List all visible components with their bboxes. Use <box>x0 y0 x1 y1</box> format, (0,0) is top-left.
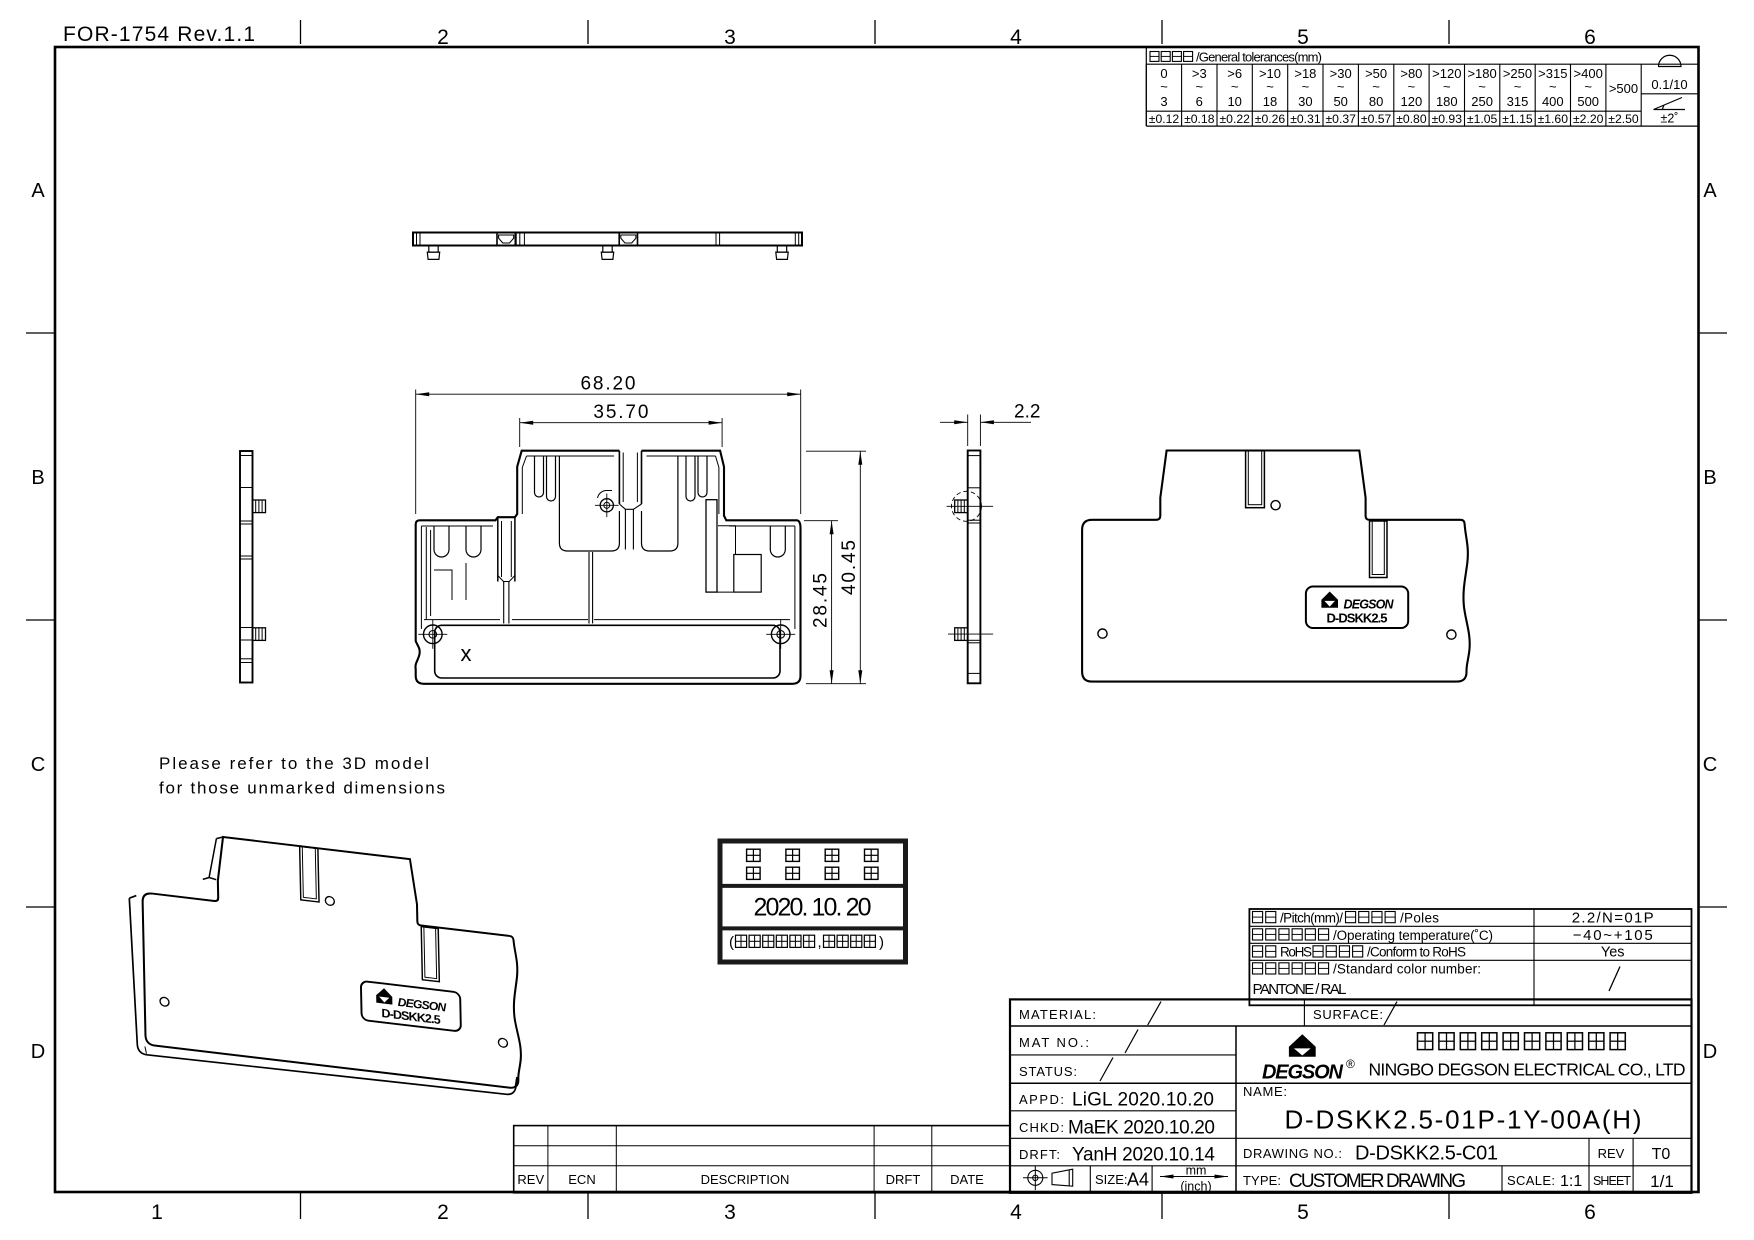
svg-text:±0.57: ±0.57 <box>1361 112 1392 126</box>
svg-text:NINGBO DEGSON ELECTRICAL CO.,: NINGBO DEGSON ELECTRICAL CO., LTD <box>1369 1060 1686 1080</box>
svg-text:~: ~ <box>1478 79 1486 94</box>
svg-text:400: 400 <box>1542 94 1564 109</box>
svg-text:2.2: 2.2 <box>1014 402 1040 423</box>
svg-text:±0.31: ±0.31 <box>1290 112 1321 126</box>
svg-text:T0: T0 <box>1652 1146 1671 1163</box>
svg-text:315: 315 <box>1507 94 1529 109</box>
svg-text:50: 50 <box>1333 94 1347 109</box>
svg-text:Please refer to the 3D model: Please refer to the 3D model <box>159 754 429 773</box>
svg-text:MAT NO.:: MAT NO.: <box>1019 1035 1089 1050</box>
svg-text:REV: REV <box>1598 1146 1625 1161</box>
svg-text:6: 6 <box>1196 94 1203 109</box>
svg-text:TYPE:: TYPE: <box>1243 1173 1281 1188</box>
svg-text:~: ~ <box>1408 79 1416 94</box>
svg-text:DRFT: DRFT <box>886 1172 921 1187</box>
svg-text:10: 10 <box>1227 94 1241 109</box>
svg-text:PANTONE / RAL: PANTONE / RAL <box>1253 981 1347 998</box>
svg-text:DEGSON: DEGSON <box>1344 598 1395 612</box>
svg-text:mm: mm <box>1186 1164 1207 1178</box>
svg-text:180: 180 <box>1436 94 1458 109</box>
svg-text:B: B <box>31 467 44 489</box>
svg-text:A4: A4 <box>1127 1170 1149 1190</box>
svg-text:FOR-1754 Rev.1.1: FOR-1754 Rev.1.1 <box>63 23 255 46</box>
svg-text:80: 80 <box>1369 94 1383 109</box>
svg-text:MATERIAL:: MATERIAL: <box>1019 1007 1096 1022</box>
svg-text:~: ~ <box>1443 79 1451 94</box>
svg-text:68.20: 68.20 <box>581 374 636 395</box>
svg-text:/General tolerances(mm): /General tolerances(mm) <box>1196 50 1322 65</box>
svg-text:LiGL 2020.10.20: LiGL 2020.10.20 <box>1072 1090 1214 1111</box>
svg-text:DRAWING NO.:: DRAWING NO.: <box>1243 1146 1342 1161</box>
svg-text:28.45: 28.45 <box>810 573 831 628</box>
svg-text:4: 4 <box>1010 1201 1022 1224</box>
svg-text:~: ~ <box>1337 79 1345 94</box>
svg-text:6: 6 <box>1584 1201 1596 1224</box>
svg-text:/Operating temperature(˚C): /Operating temperature(˚C) <box>1333 928 1493 943</box>
svg-text:D-DSKK2.5-C01: D-DSKK2.5-C01 <box>1355 1143 1498 1165</box>
svg-text:>500: >500 <box>1609 81 1638 96</box>
svg-text:x: x <box>461 641 472 666</box>
svg-text:250: 250 <box>1471 94 1493 109</box>
svg-text:0.1/10: 0.1/10 <box>1651 77 1687 92</box>
svg-text:2: 2 <box>437 1201 449 1224</box>
svg-text:D-DSKK2.5: D-DSKK2.5 <box>1327 611 1388 626</box>
svg-text:C: C <box>1703 754 1717 776</box>
svg-text:±0.12: ±0.12 <box>1149 112 1180 126</box>
svg-text:for those unmarked dimensions: for those unmarked dimensions <box>159 779 445 798</box>
svg-text:2: 2 <box>437 26 449 49</box>
svg-text:500: 500 <box>1577 94 1599 109</box>
svg-text:Yes: Yes <box>1601 945 1625 961</box>
svg-text:MaEK 2020.10.20: MaEK 2020.10.20 <box>1068 1118 1215 1139</box>
svg-text:±1.15: ±1.15 <box>1502 112 1533 126</box>
svg-text:CHKD:: CHKD: <box>1019 1120 1064 1135</box>
svg-text:35.70: 35.70 <box>593 402 648 423</box>
svg-text:/Conform to RoHS: /Conform to RoHS <box>1367 945 1466 960</box>
svg-text:±0.80: ±0.80 <box>1396 112 1427 126</box>
svg-text:): ) <box>879 934 884 951</box>
svg-text:40.45: 40.45 <box>839 540 860 595</box>
svg-text:,: , <box>818 934 822 951</box>
svg-text:RoHS: RoHS <box>1280 945 1312 960</box>
svg-text:NAME:: NAME: <box>1243 1084 1287 1099</box>
svg-text:30: 30 <box>1298 94 1312 109</box>
svg-text:±0.37: ±0.37 <box>1325 112 1356 126</box>
svg-text:ECN: ECN <box>568 1172 595 1187</box>
svg-text:(: ( <box>729 934 734 951</box>
svg-text:/Poles: /Poles <box>1400 911 1439 926</box>
svg-text:DESCRIPTION: DESCRIPTION <box>701 1172 790 1187</box>
svg-text:~: ~ <box>1302 79 1310 94</box>
svg-text:1: 1 <box>151 1201 163 1224</box>
svg-text:®: ® <box>1346 1057 1355 1071</box>
svg-text:±0.22: ±0.22 <box>1219 112 1250 126</box>
svg-text:5: 5 <box>1297 26 1309 49</box>
svg-text:DATE: DATE <box>950 1172 984 1187</box>
svg-text:±0.18: ±0.18 <box>1184 112 1215 126</box>
svg-text:SIZE:: SIZE: <box>1095 1172 1128 1187</box>
svg-text:5: 5 <box>1297 1201 1309 1224</box>
svg-text:~: ~ <box>1160 79 1168 94</box>
svg-text:SHEET: SHEET <box>1593 1174 1631 1188</box>
svg-text:APPD:: APPD: <box>1019 1092 1064 1107</box>
svg-text:±2.50: ±2.50 <box>1608 112 1639 126</box>
svg-text:(inch): (inch) <box>1180 1180 1211 1194</box>
svg-text:±2.20: ±2.20 <box>1573 112 1604 126</box>
svg-text:D: D <box>1703 1041 1717 1063</box>
svg-text:~: ~ <box>1196 79 1204 94</box>
svg-text:DEGSON: DEGSON <box>1262 1062 1344 1084</box>
svg-text:D-DSKK2.5-01P-1Y-00A(H): D-DSKK2.5-01P-1Y-00A(H) <box>1285 1105 1642 1135</box>
svg-text:SCALE:: SCALE: <box>1507 1173 1555 1188</box>
svg-text:~: ~ <box>1514 79 1522 94</box>
svg-text:±1.60: ±1.60 <box>1538 112 1569 126</box>
svg-text:REV: REV <box>517 1172 544 1187</box>
svg-text:~: ~ <box>1231 79 1239 94</box>
svg-text:2.2/N=01P: 2.2/N=01P <box>1572 910 1654 927</box>
svg-text:±1.05: ±1.05 <box>1467 112 1498 126</box>
svg-text:A: A <box>31 180 45 202</box>
svg-text:±0.93: ±0.93 <box>1432 112 1463 126</box>
svg-text:SURFACE:: SURFACE: <box>1313 1007 1383 1022</box>
svg-text:−40~+105: −40~+105 <box>1573 927 1653 944</box>
svg-text:3: 3 <box>724 26 736 49</box>
svg-text:C: C <box>31 754 45 776</box>
svg-text:120: 120 <box>1401 94 1423 109</box>
svg-text:3: 3 <box>1160 94 1167 109</box>
svg-text:CUSTOMER DRAWING: CUSTOMER DRAWING <box>1289 1171 1466 1192</box>
svg-text:±2˚: ±2˚ <box>1661 112 1679 126</box>
svg-text:3: 3 <box>724 1201 736 1224</box>
svg-text:2020. 10. 20: 2020. 10. 20 <box>754 894 872 922</box>
svg-text:~: ~ <box>1549 79 1557 94</box>
svg-text:1:1: 1:1 <box>1560 1173 1582 1190</box>
svg-text:1/1: 1/1 <box>1650 1172 1674 1191</box>
svg-text:/Pitch(mm)/: /Pitch(mm)/ <box>1280 911 1343 926</box>
svg-text:~: ~ <box>1372 79 1380 94</box>
svg-text:~: ~ <box>1266 79 1274 94</box>
svg-text:±0.26: ±0.26 <box>1255 112 1286 126</box>
svg-text:4: 4 <box>1010 26 1022 49</box>
svg-text:B: B <box>1703 467 1716 489</box>
svg-text:DRFT:: DRFT: <box>1019 1147 1060 1162</box>
svg-text:/Standard color number:: /Standard color number: <box>1333 962 1481 977</box>
svg-text:A: A <box>1703 180 1717 202</box>
svg-text:~: ~ <box>1584 79 1592 94</box>
svg-text:YanH 2020.10.14: YanH 2020.10.14 <box>1072 1145 1215 1166</box>
svg-text:6: 6 <box>1584 26 1596 49</box>
svg-text:STATUS:: STATUS: <box>1019 1064 1077 1079</box>
svg-text:18: 18 <box>1263 94 1277 109</box>
svg-text:D: D <box>31 1041 45 1063</box>
